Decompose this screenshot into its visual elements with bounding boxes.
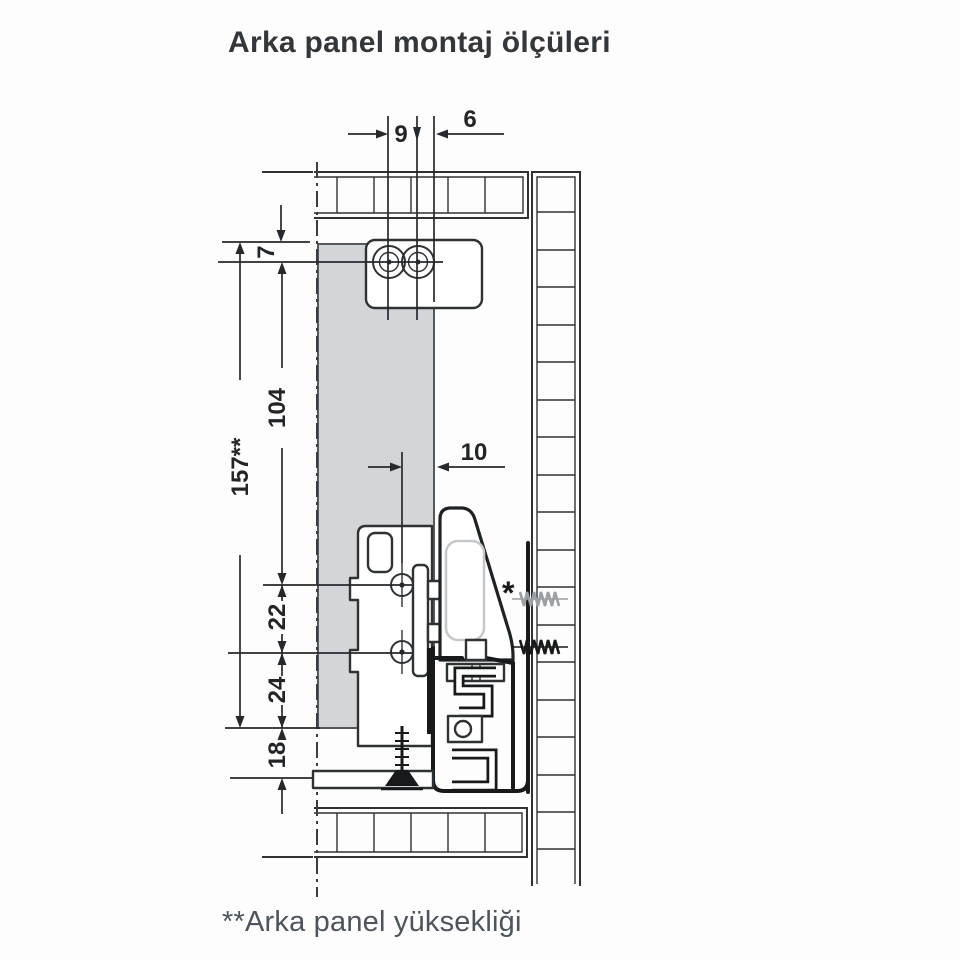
dim-6: 6 xyxy=(463,106,476,133)
bottom-board-outline xyxy=(314,808,527,857)
footnote: **Arka panel yüksekliği xyxy=(222,906,522,939)
connector-slot xyxy=(368,533,392,572)
rear-connector-plate xyxy=(350,526,440,746)
top-board-outline xyxy=(314,172,528,218)
top-board-inner-line xyxy=(314,177,523,213)
right-board xyxy=(532,172,580,886)
dim-24: 24 xyxy=(264,676,291,703)
dim-18: 18 xyxy=(264,742,291,769)
dim-22: 22 xyxy=(264,604,291,631)
dim-10: 10 xyxy=(461,439,488,466)
roller xyxy=(455,721,471,737)
bottom-board xyxy=(262,808,527,857)
top-bracket-plate xyxy=(366,240,482,308)
diagram-page: Arka panel montaj ölçüleri xyxy=(0,0,960,960)
bottom-board-hatch xyxy=(337,813,485,852)
euro-screw xyxy=(512,640,568,654)
adjuster-tab xyxy=(428,624,440,642)
screw-thread-icon xyxy=(520,592,559,606)
dim-9: 9 xyxy=(394,121,407,148)
top-board xyxy=(262,172,528,218)
dim-157: 157** xyxy=(227,437,254,496)
adjuster-bar xyxy=(413,565,428,676)
optional-fixing-marker: * xyxy=(502,575,515,611)
right-board-hatch xyxy=(537,212,575,849)
technical-diagram: * 9 6 10 157* xyxy=(0,0,960,960)
adjuster-tab xyxy=(428,581,440,599)
right-board-inner-line xyxy=(537,177,575,884)
right-board-outline xyxy=(532,172,580,886)
optional-euro-screw xyxy=(512,592,568,606)
top-bracket xyxy=(366,240,482,308)
top-board-hatch xyxy=(337,177,485,213)
bottom-board-inner-line xyxy=(314,813,522,852)
dim-104: 104 xyxy=(264,387,291,428)
runner-hook-channel xyxy=(452,754,492,786)
dim-7: 7 xyxy=(253,245,280,258)
runner-clip-tab xyxy=(466,640,486,660)
screw-thread-icon xyxy=(520,640,559,654)
